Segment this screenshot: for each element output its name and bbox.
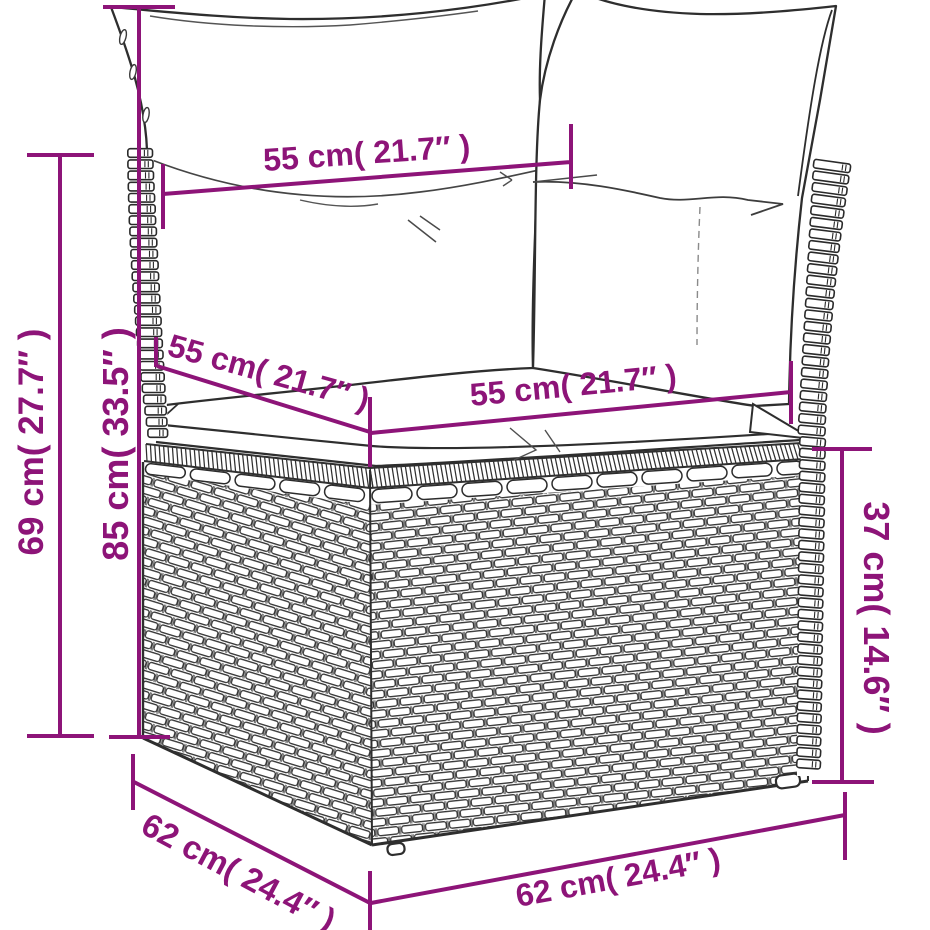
svg-text:85 cm( 33.5″ ): 85 cm( 33.5″ ): [95, 327, 136, 560]
svg-text:37 cm( 14.6″ ): 37 cm( 14.6″ ): [856, 501, 897, 734]
svg-text:69 cm( 27.7″ ): 69 cm( 27.7″ ): [12, 329, 51, 556]
